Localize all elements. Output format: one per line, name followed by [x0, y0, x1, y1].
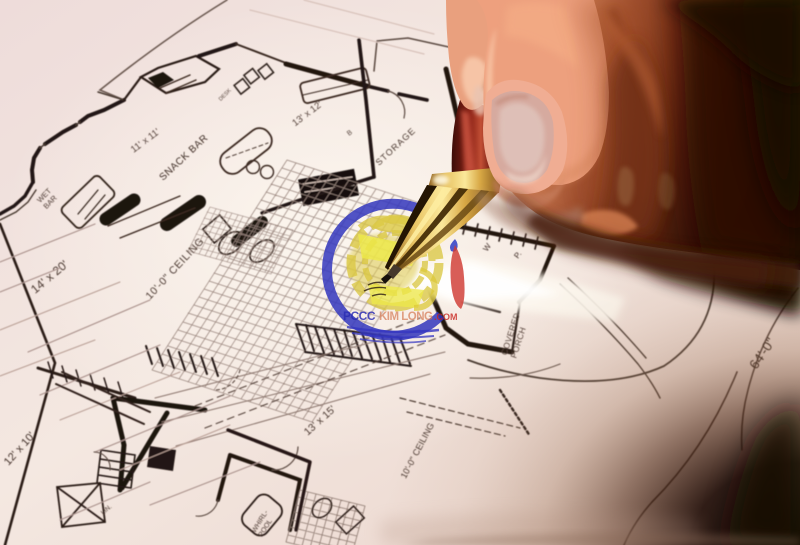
svg-text:PCCC: PCCC [343, 309, 376, 323]
